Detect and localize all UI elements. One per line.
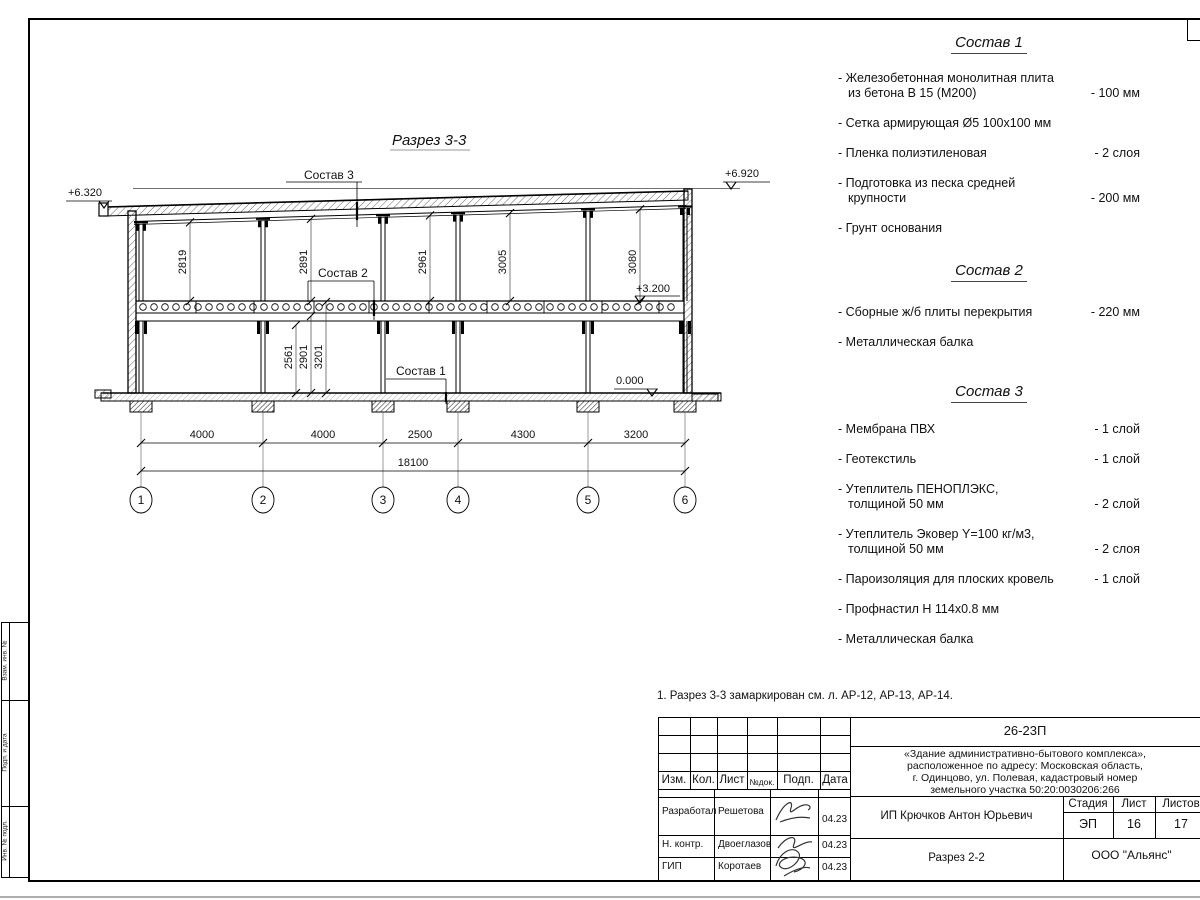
slab-core-circle	[492, 304, 499, 311]
slab-core-circle	[514, 304, 521, 311]
elev-zero: 0.000	[616, 375, 644, 387]
tb-project-line: г. Одинцово, ул. Полевая, кадастровый но…	[850, 772, 1200, 784]
beam-stub	[680, 208, 683, 215]
callout-sostav2: Состав 2	[318, 266, 368, 280]
beam-stub	[452, 321, 455, 334]
list-item: - Профнастил Н 114х0.8 мм	[838, 602, 1140, 617]
tb-line	[1063, 812, 1200, 813]
sostav-3-title: Состав 3	[838, 383, 1140, 400]
beam-stub	[461, 215, 464, 222]
tb-line	[658, 797, 850, 798]
item-line: - Грунт основания	[838, 221, 942, 236]
slab-core-circle	[272, 304, 279, 311]
tb-role-0: Разработал	[662, 806, 716, 817]
slab-core-circle	[602, 304, 609, 311]
tb-line	[850, 746, 1200, 747]
frame-bottom	[28, 880, 1200, 882]
elev-left: +6.320	[68, 187, 102, 199]
sostav-3-list: Состав 3 - Мембрана ПВХ - 1 слой - Геоте…	[838, 383, 1140, 662]
list-item: - Грунт основания	[838, 221, 1140, 236]
sostav-2-title: Состав 2	[838, 262, 1140, 279]
tb-col-izm: Изм.	[658, 774, 690, 786]
slab-core-circle	[360, 304, 367, 311]
dim-total: 18100	[398, 457, 429, 469]
tb-project-line: расположенное по адресу: Московская обла…	[850, 760, 1200, 772]
callout-sostav1: Состав 1	[396, 364, 446, 378]
list-item: - Сетка армирующая Ø5 100х100 мм	[838, 116, 1140, 131]
beam-stub	[386, 321, 389, 334]
list-item: - Сборные ж/б плиты перекрытия - 220 мм	[838, 305, 1140, 320]
beam-stub	[135, 321, 138, 334]
item-value: - 1 слой	[1086, 572, 1140, 587]
item-line: крупности	[838, 191, 1015, 206]
tb-stage-value: ЭП	[1063, 817, 1113, 831]
tb-date-1: 04.23	[822, 840, 847, 851]
item-value: - 2 слоя	[1087, 146, 1140, 161]
dim-h-2961: 2961	[417, 250, 429, 274]
beam-stub	[144, 321, 147, 334]
beam-stub	[258, 220, 261, 227]
tb-sheet-label: Лист	[1113, 798, 1155, 810]
foundation	[130, 401, 152, 412]
dim-h-2561: 2561	[283, 345, 295, 369]
slab-core-circle	[239, 304, 246, 311]
tb-sheets-label: Листов	[1155, 798, 1200, 810]
dim-bay-5: 3200	[624, 429, 648, 441]
list-item: - Металлическая балка	[838, 632, 1140, 647]
slab-core-circle	[459, 304, 466, 311]
right-ledge	[692, 394, 718, 401]
slab-core-circle	[294, 304, 301, 311]
right-wall	[684, 189, 692, 393]
left-ledge	[95, 390, 111, 398]
tb-name-2: Коротаев	[718, 861, 761, 872]
item-line: - Железобетонная монолитная плита	[838, 71, 1054, 86]
slab-core-circle	[393, 304, 400, 311]
signatures	[770, 794, 818, 882]
item-value: - 2 слой	[1086, 497, 1140, 512]
tb-col-ndok: №док.	[747, 777, 777, 787]
slab-core-circle	[162, 304, 169, 311]
beam-stub	[591, 211, 594, 218]
slab-core-circle	[316, 304, 323, 311]
callout-sostav3: Состав 3	[304, 168, 354, 182]
beam-stub	[583, 211, 586, 218]
slab-core-circle	[261, 304, 268, 311]
tb-stage-label: Стадия	[1063, 798, 1113, 810]
list-item: - Металлическая балка	[838, 335, 1140, 350]
foundation	[577, 401, 599, 412]
tb-company: ООО "Альянс"	[1063, 848, 1200, 862]
slab-core-circle	[338, 304, 345, 311]
tb-line	[658, 789, 850, 790]
slab-core-circle	[349, 304, 356, 311]
margin-line	[9, 622, 10, 877]
slab-core-circle	[173, 304, 180, 311]
beam-stub	[377, 321, 380, 334]
slab-core-circle	[624, 304, 631, 311]
item-line: толщиной 50 мм	[838, 542, 1034, 557]
item-line: из бетона В 15 (М200)	[838, 86, 1054, 101]
tb-project-line: «Здание административно-бытового комплек…	[850, 748, 1200, 760]
tb-role-1: Н. контр.	[662, 839, 703, 850]
slab-core-circle	[657, 304, 664, 311]
tb-line	[658, 717, 659, 880]
tb-col-list: Лист	[717, 774, 747, 786]
list-item: - Мембрана ПВХ - 1 слой	[838, 422, 1140, 437]
elev-mid: +3.200	[636, 283, 670, 295]
axis-number: 3	[380, 493, 387, 507]
slab-core-circle	[668, 304, 675, 311]
sheet-bottom-edge	[0, 896, 1200, 898]
item-line: - Профнастил Н 114х0.8 мм	[838, 602, 999, 617]
slab-core-circle	[448, 304, 455, 311]
elev-right: +6.920	[725, 168, 759, 180]
left-wall	[128, 211, 136, 393]
tb-line	[818, 789, 819, 880]
item-value: - 200 мм	[1083, 191, 1140, 206]
slab-core-circle	[283, 304, 290, 311]
item-line: - Утеплитель Эковер Y=100 кг/м3,	[838, 527, 1034, 542]
list-item: - Утеплитель Эковер Y=100 кг/м3,толщиной…	[838, 527, 1140, 557]
foundation	[372, 401, 394, 412]
slab-core-circle	[580, 304, 587, 311]
dim-bay-4: 4300	[511, 429, 535, 441]
tb-col-data: Дата	[820, 774, 850, 786]
tb-client: ИП Крючков Антон Юрьевич	[850, 810, 1063, 822]
slab-core-circle	[206, 304, 213, 311]
drawing-title: Разрез 3-3	[392, 132, 467, 149]
beam-stub	[453, 215, 456, 222]
tb-line	[658, 771, 850, 772]
beam-stub	[688, 208, 691, 215]
beam-stub	[266, 321, 269, 334]
tb-col-podp: Подп.	[777, 774, 820, 786]
list-item: - Железобетонная монолитная плитаиз бето…	[838, 71, 1140, 101]
slab-core-circle	[250, 304, 257, 311]
axis-number: 5	[585, 493, 592, 507]
axis-number: 1	[138, 493, 145, 507]
beam-stub	[144, 224, 147, 231]
beam-stub	[591, 321, 594, 334]
item-line: - Пароизоляция для плоских кровель	[838, 572, 1054, 587]
beam-stub	[378, 217, 381, 224]
dim-h-2819: 2819	[177, 250, 189, 274]
tb-name-1: Двоеглазов	[718, 839, 771, 850]
tb-sheet-value: 16	[1113, 817, 1155, 831]
beam-stub	[386, 217, 389, 224]
sostav-1-title: Состав 1	[838, 34, 1140, 51]
tb-col-kol: Кол.	[690, 774, 717, 786]
item-line: - Пленка полиэтиленовая	[838, 146, 987, 161]
tb-name-0: Решетова	[718, 806, 764, 817]
foundation	[252, 401, 274, 412]
dim-bay-1: 4000	[190, 429, 214, 441]
item-value: - 2 слоя	[1087, 542, 1140, 557]
tb-line	[714, 789, 715, 880]
item-value: - 100 мм	[1083, 86, 1140, 101]
tb-line	[658, 735, 850, 736]
slab-core-circle	[481, 304, 488, 311]
item-line: - Утеплитель ПЕНОПЛЭКС,	[838, 482, 998, 497]
margin-line	[1, 877, 29, 878]
item-line: - Подготовка из песка средней	[838, 176, 1015, 191]
tb-date-2: 04.23	[822, 862, 847, 873]
slab-core-circle	[547, 304, 554, 311]
slab-core-circle	[525, 304, 532, 311]
slab-core-circle	[646, 304, 653, 311]
axis-number: 4	[455, 493, 462, 507]
list-item: - Геотекстиль - 1 слой	[838, 452, 1140, 467]
beam-stub	[461, 321, 464, 334]
dim-h-3080: 3080	[627, 250, 639, 274]
signature-stroke	[776, 803, 810, 822]
beam-stub	[266, 220, 269, 227]
tb-line	[658, 717, 1200, 718]
slab-core-circle	[151, 304, 158, 311]
signature-stroke	[776, 838, 812, 876]
sheet-note: 1. Разрез 3-3 замаркирован см. л. АР-12,…	[657, 690, 953, 702]
tb-line	[658, 753, 850, 754]
margin-label-inv: Инв. № подл.	[2, 806, 9, 876]
tb-line	[850, 838, 1200, 839]
tb-sheets-value: 17	[1155, 817, 1200, 831]
slab-core-circle	[569, 304, 576, 311]
dim-bay-2: 4000	[311, 429, 335, 441]
item-line: - Сетка армирующая Ø5 100х100 мм	[838, 116, 1051, 131]
item-value: - 1 слой	[1086, 452, 1140, 467]
slab-core-circle	[404, 304, 411, 311]
tb-line	[658, 835, 850, 836]
dim-h-3005: 3005	[497, 250, 509, 274]
tb-line	[658, 857, 850, 858]
item-line: - Сборные ж/б плиты перекрытия	[838, 305, 1032, 320]
margin-line	[1, 700, 29, 701]
item-value: - 220 мм	[1083, 305, 1140, 320]
dim-h-2891: 2891	[298, 250, 310, 274]
tb-doc-number: 26-23П	[850, 723, 1200, 738]
slab-core-circle	[217, 304, 224, 311]
item-line: - Металлическая балка	[838, 632, 973, 647]
list-item: - Пленка полиэтиленовая - 2 слоя	[838, 146, 1140, 161]
tb-role-2: ГИП	[662, 861, 682, 872]
item-value: - 1 слой	[1086, 422, 1140, 437]
item-line: - Геотекстиль	[838, 452, 916, 467]
margin-label-vzam: Взам. инв. №	[2, 626, 9, 696]
beam-stub	[257, 321, 260, 334]
slab-core-circle	[536, 304, 543, 311]
slab-core-circle	[382, 304, 389, 311]
slab-core-circle	[415, 304, 422, 311]
slab-core-circle	[558, 304, 565, 311]
item-line: - Мембрана ПВХ	[838, 422, 935, 437]
beam-stub	[136, 224, 139, 231]
slab-core-circle	[613, 304, 620, 311]
slab-core-circle	[140, 304, 147, 311]
sostav-1-list: Состав 1 - Железобетонная монолитная пли…	[838, 34, 1140, 251]
sostav-2-list: Состав 2 - Сборные ж/б плиты перекрытия …	[838, 262, 1140, 365]
axis-number: 2	[260, 493, 267, 507]
beam-stub	[679, 321, 682, 334]
list-item: - Подготовка из песка среднейкрупности -…	[838, 176, 1140, 206]
beam-stub	[582, 321, 585, 334]
roof-slab	[106, 191, 688, 216]
axis-number: 6	[682, 493, 689, 507]
dim-h-3201: 3201	[313, 345, 325, 369]
margin-line	[1, 622, 29, 623]
margin-label-podp: Подп. и дата	[2, 718, 9, 788]
slab-core-circle	[591, 304, 598, 311]
list-item: - Утеплитель ПЕНОПЛЭКС,толщиной 50 мм - …	[838, 482, 1140, 512]
tb-project-line: земельного участка 50:20:0030206:266	[850, 784, 1200, 796]
dim-bay-3: 2500	[408, 429, 432, 441]
tb-line	[850, 796, 1200, 797]
tb-sheet-title: Разрез 2-2	[850, 852, 1063, 864]
drawing-sheet: { "drawing": { "title": "Разрез 3-3", "l…	[0, 0, 1200, 900]
slab-core-circle	[437, 304, 444, 311]
slab-core-circle	[228, 304, 235, 311]
foundation	[674, 401, 696, 412]
elev-right-arrow	[726, 182, 736, 189]
slab-core-circle	[327, 304, 334, 311]
beam-stub	[688, 321, 691, 334]
item-line: толщиной 50 мм	[838, 497, 998, 512]
slab-core-circle	[470, 304, 477, 311]
item-line: - Металлическая балка	[838, 335, 973, 350]
foundation	[447, 401, 469, 412]
list-item: - Пароизоляция для плоских кровель - 1 с…	[838, 572, 1140, 587]
ground-slab	[101, 393, 721, 401]
tb-date-0: 04.23	[822, 814, 847, 825]
dim-h-2901: 2901	[298, 345, 310, 369]
